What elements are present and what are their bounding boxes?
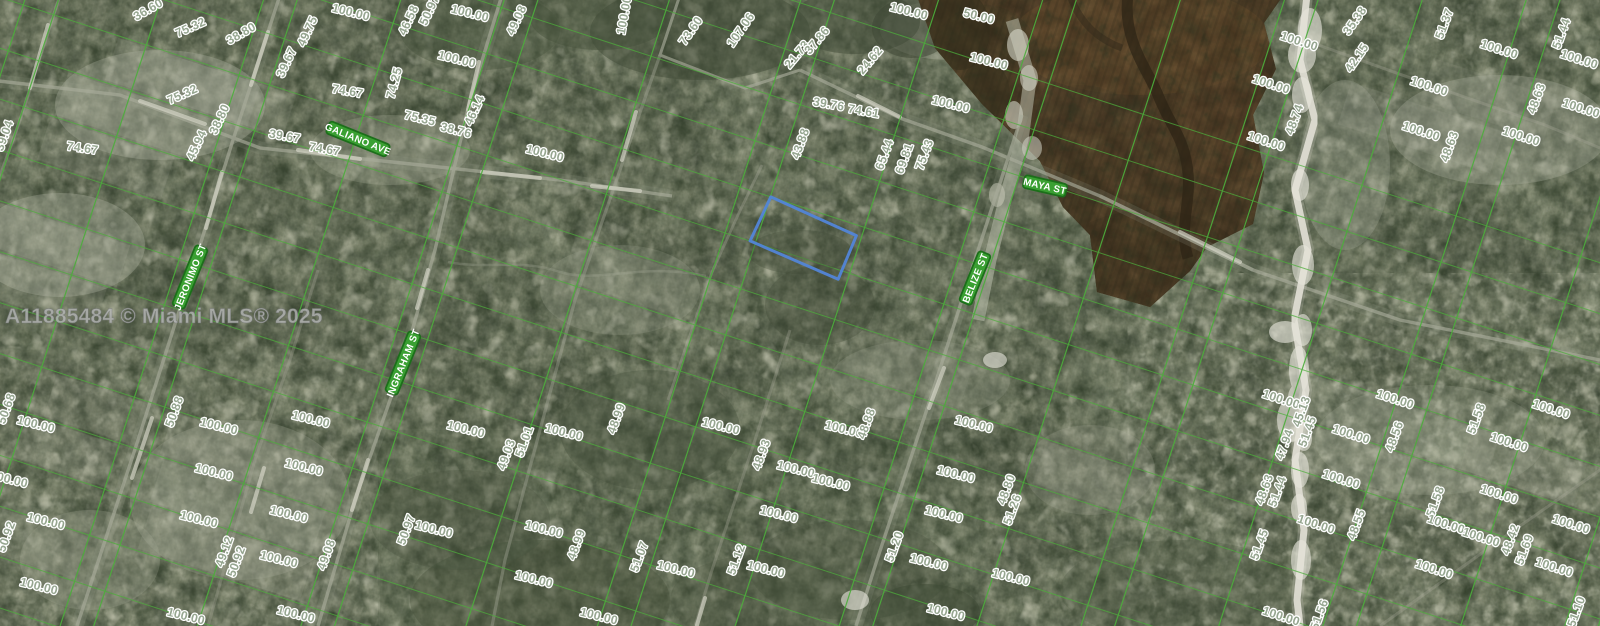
svg-text:A11885484 © Miami MLS® 2025: A11885484 © Miami MLS® 2025 <box>5 305 323 328</box>
